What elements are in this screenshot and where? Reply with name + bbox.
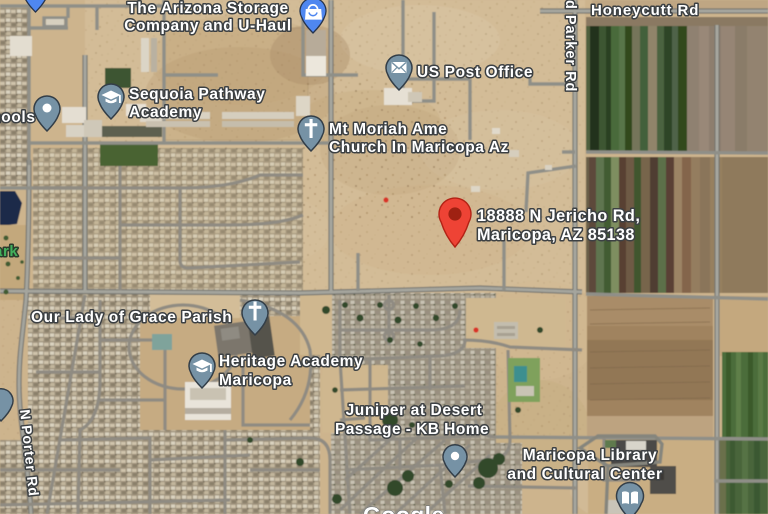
svg-text:Sequoia Pathway: Sequoia Pathway	[129, 86, 265, 103]
svg-text:chools: chools	[0, 109, 36, 126]
svg-text:Company and U-Haul: Company and U-Haul	[124, 18, 292, 35]
svg-text:Honeycutt Rd: Honeycutt Rd	[591, 2, 699, 19]
svg-text:The Arizona Storage: The Arizona Storage	[127, 0, 289, 17]
svg-text:Maricopa, AZ 85138: Maricopa, AZ 85138	[477, 226, 635, 244]
svg-text:Church In Maricopa Az: Church In Maricopa Az	[329, 139, 509, 156]
svg-text:Our Lady of Grace Parish: Our Lady of Grace Parish	[31, 309, 232, 326]
svg-text:Maricopa Library: Maricopa Library	[523, 447, 658, 464]
svg-text:ark: ark	[0, 243, 18, 260]
svg-text:Juniper at Desert: Juniper at Desert	[346, 402, 483, 419]
svg-text:US Post Office: US Post Office	[417, 64, 533, 81]
svg-text:and Cultural Center: and Cultural Center	[507, 466, 662, 483]
svg-text:Mt Moriah Ame: Mt Moriah Ame	[329, 121, 447, 138]
svg-text:Maricopa: Maricopa	[219, 372, 292, 389]
svg-text:Google: Google	[363, 502, 445, 514]
svg-text:d Parker Rd: d Parker Rd	[562, 0, 578, 92]
svg-text:Passage - KB Home: Passage - KB Home	[335, 421, 489, 438]
svg-text:Academy: Academy	[129, 104, 202, 121]
svg-text:18888 N Jericho Rd,: 18888 N Jericho Rd,	[477, 207, 640, 225]
svg-text:Heritage Academy: Heritage Academy	[219, 353, 363, 370]
